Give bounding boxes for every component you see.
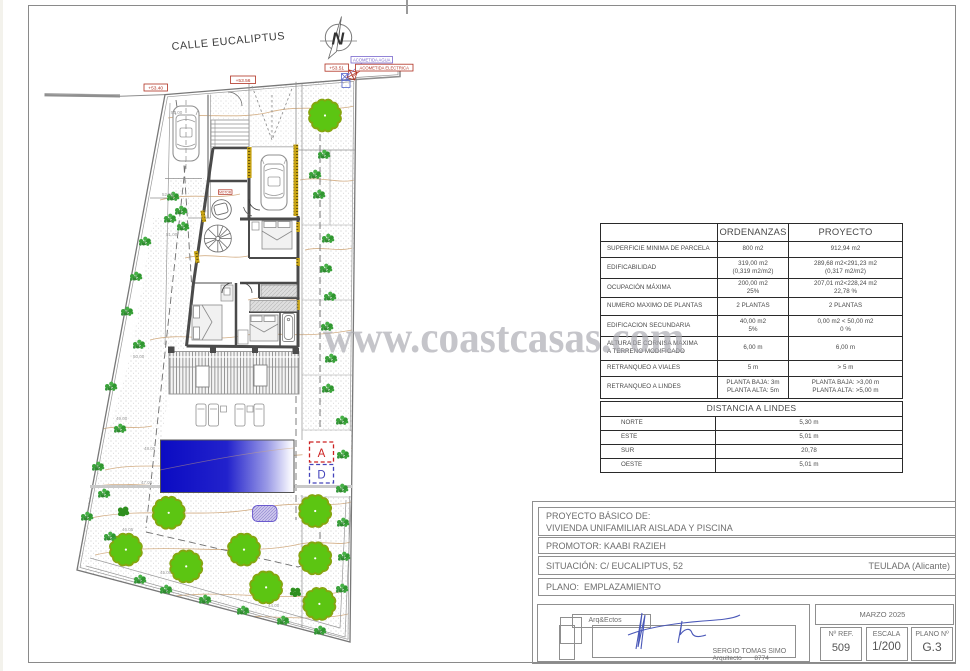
svg-text:49.00: 49.00 <box>116 416 128 421</box>
svg-text:N: N <box>332 29 345 49</box>
svg-text:+53.51: +53.51 <box>329 66 344 72</box>
svg-text:48.00: 48.00 <box>144 446 156 451</box>
svg-text:CALLE EUCALIPTUS: CALLE EUCALIPTUS <box>171 30 285 53</box>
svg-text:52.00: 52.00 <box>162 192 174 197</box>
svg-text:47.00: 47.00 <box>141 480 153 485</box>
svg-text:44.00: 44.00 <box>268 603 280 608</box>
svg-text:45.00: 45.00 <box>160 570 172 575</box>
svg-text:D: D <box>317 470 325 482</box>
svg-text:50.00: 50.00 <box>133 354 145 359</box>
svg-text:ACOMETIDA AGUA: ACOMETIDA AGUA <box>353 58 391 63</box>
svg-text:+53.40: +53.40 <box>148 86 163 92</box>
svg-text:MOTOR: MOTOR <box>219 191 232 195</box>
svg-text:+53.56: +53.56 <box>236 78 251 84</box>
svg-text:ACOMETIDA ELECTRICA: ACOMETIDA ELECTRICA <box>360 66 410 71</box>
svg-text:46.05: 46.05 <box>122 527 134 532</box>
svg-text:53.00: 53.00 <box>171 110 183 115</box>
svg-text:51.00: 51.00 <box>166 232 178 237</box>
svg-text:A: A <box>318 448 326 460</box>
